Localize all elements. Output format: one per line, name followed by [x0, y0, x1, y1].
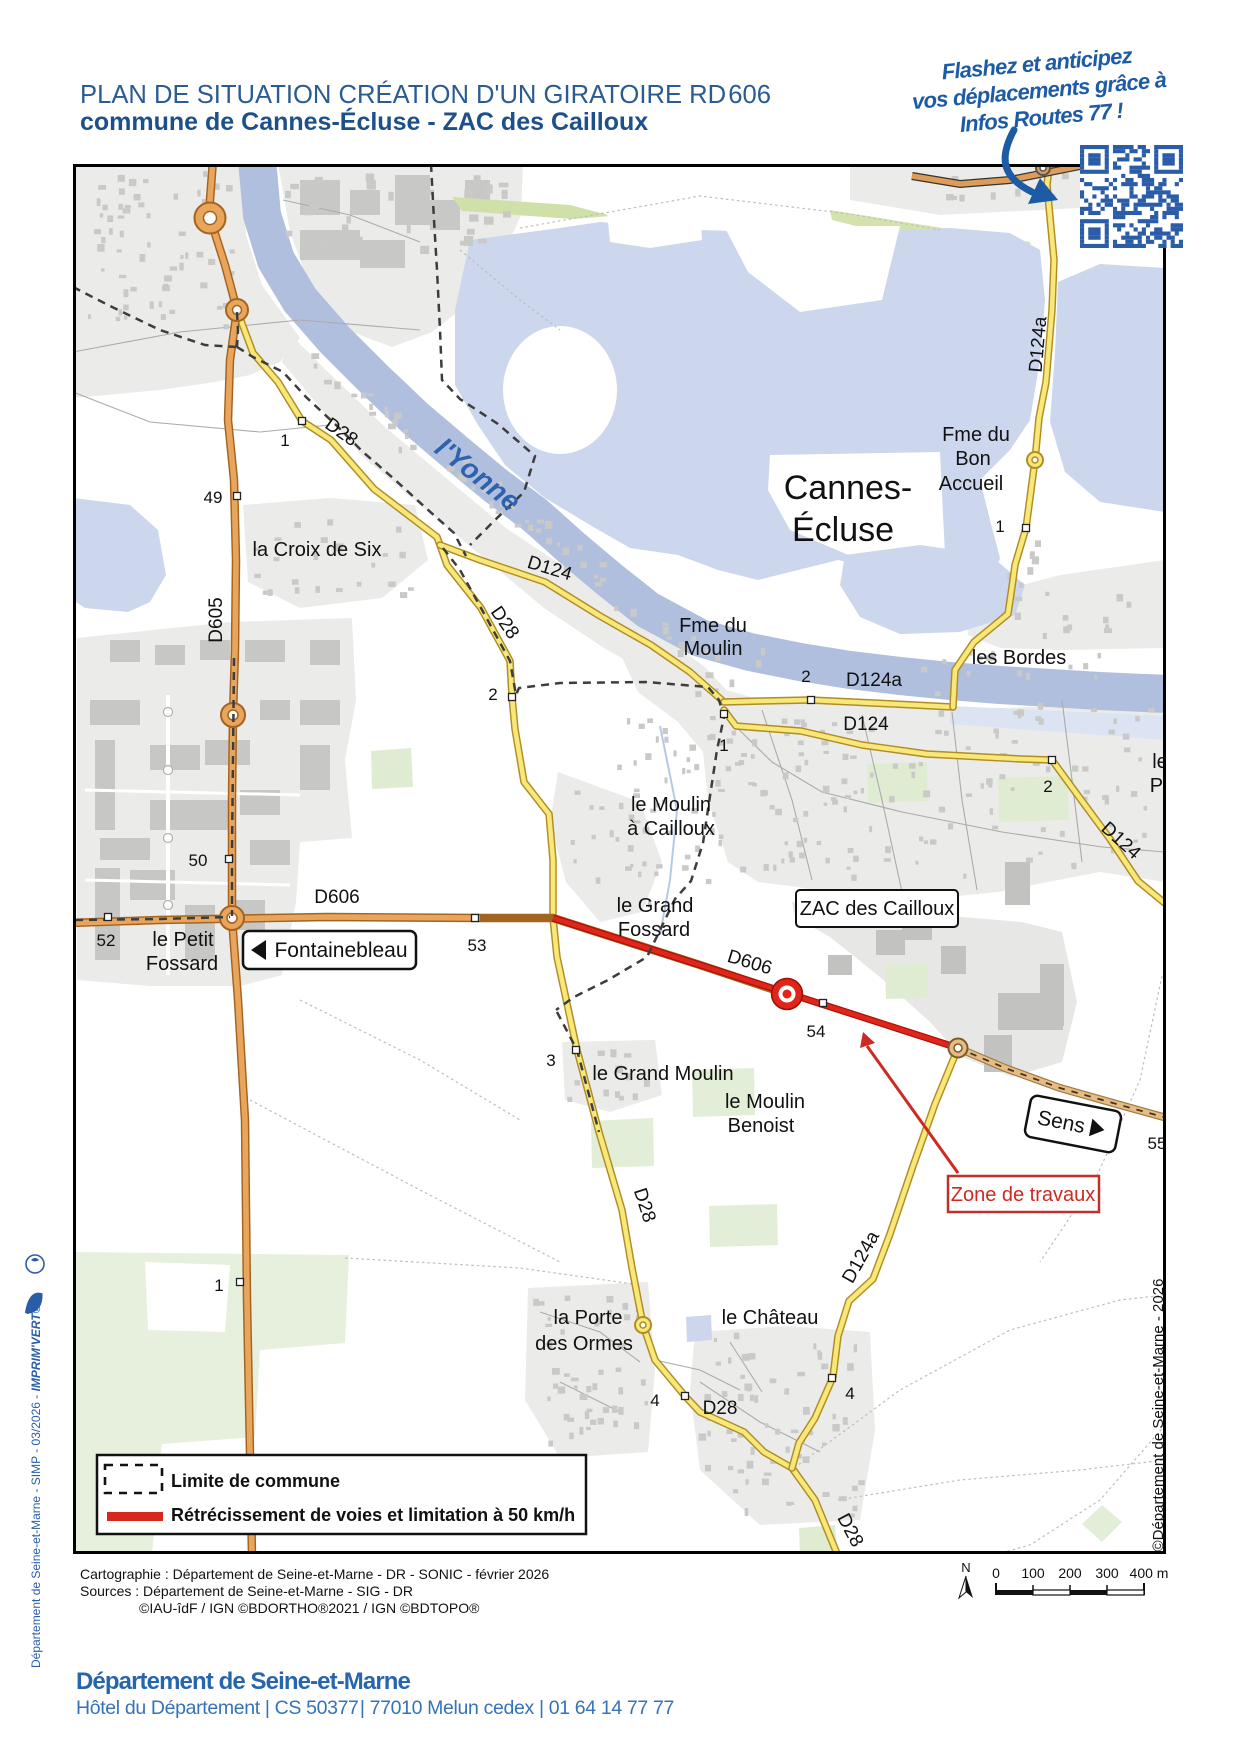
svg-text:Fossard: Fossard	[618, 919, 690, 941]
svg-text:1: 1	[214, 1276, 223, 1295]
svg-text:2: 2	[801, 667, 810, 686]
svg-text:la Porte: la Porte	[554, 1307, 623, 1329]
svg-text:49: 49	[204, 488, 223, 507]
svg-text:2: 2	[1043, 777, 1052, 796]
svg-text:0: 0	[992, 1565, 1000, 1581]
svg-text:Bon: Bon	[955, 448, 991, 470]
svg-text:Fossard: Fossard	[146, 953, 218, 975]
svg-text:D28: D28	[703, 1398, 738, 1419]
svg-text:Accueil: Accueil	[939, 473, 1003, 495]
svg-text:54: 54	[807, 1022, 826, 1041]
svg-text:ZAC des Cailloux: ZAC des Cailloux	[800, 898, 955, 920]
svg-text:400 m: 400 m	[1130, 1565, 1169, 1581]
svg-text:N: N	[961, 1560, 970, 1575]
svg-text:4: 4	[650, 1391, 659, 1410]
svg-text:le Grand Moulin: le Grand Moulin	[592, 1063, 733, 1085]
svg-text:2: 2	[488, 685, 497, 704]
svg-text:50: 50	[189, 851, 208, 870]
svg-text:52: 52	[97, 931, 116, 950]
svg-text:le Moulin: le Moulin	[631, 794, 711, 816]
svg-text:les Bordes: les Bordes	[972, 647, 1067, 669]
svg-text:3: 3	[546, 1051, 555, 1070]
svg-text:Fontainebleau: Fontainebleau	[274, 939, 407, 962]
svg-text:1: 1	[280, 431, 289, 450]
svg-text:le Petit: le Petit	[152, 929, 214, 951]
svg-text:1: 1	[995, 517, 1004, 536]
svg-text:Fme du: Fme du	[942, 424, 1010, 446]
svg-text:le Château: le Château	[722, 1307, 819, 1329]
svg-text:D124: D124	[843, 714, 889, 735]
svg-text:le Grand: le Grand	[617, 895, 694, 917]
svg-text:Fme du: Fme du	[679, 615, 747, 637]
svg-text:Benoist: Benoist	[728, 1115, 795, 1137]
svg-text:Zone de travaux: Zone de travaux	[951, 1184, 1096, 1206]
svg-text:Limite de commune: Limite de commune	[171, 1471, 340, 1491]
svg-text:Moulin: Moulin	[684, 638, 743, 660]
svg-text:4: 4	[845, 1384, 854, 1403]
svg-text:D606: D606	[314, 887, 359, 908]
svg-text:Cannes-: Cannes-	[784, 469, 913, 507]
svg-text:la Croix de Six: la Croix de Six	[253, 539, 382, 561]
svg-text:D605: D605	[206, 597, 227, 642]
svg-text:100: 100	[1021, 1565, 1045, 1581]
svg-text:Rétrécissement de voies et lim: Rétrécissement de voies et limitation à …	[171, 1505, 575, 1525]
svg-text:200: 200	[1058, 1565, 1082, 1581]
svg-text:53: 53	[468, 936, 487, 955]
svg-text:1: 1	[719, 736, 728, 755]
svg-text:à Cailloux: à Cailloux	[627, 818, 715, 840]
svg-text:des Ormes: des Ormes	[535, 1333, 633, 1355]
svg-text:D124a: D124a	[846, 670, 902, 691]
svg-text:300: 300	[1095, 1565, 1119, 1581]
svg-text:Écluse: Écluse	[792, 511, 894, 549]
svg-text:le Moulin: le Moulin	[725, 1091, 805, 1113]
